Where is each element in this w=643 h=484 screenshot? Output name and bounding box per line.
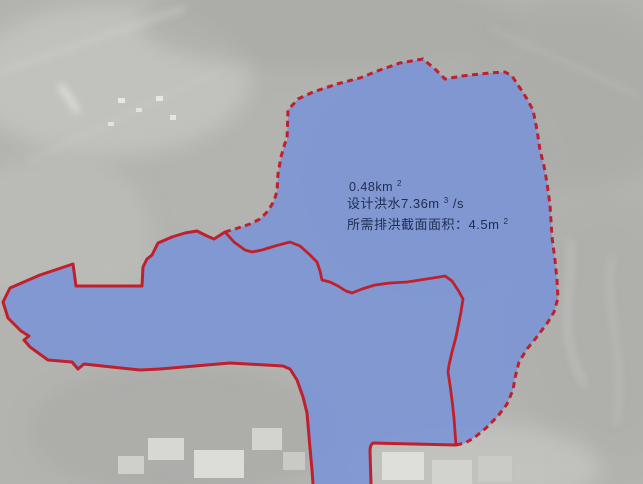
satellite-map-view: 0.48km 2 设计洪水7.36m 3 /s 所需排洪截面面积：4.5m 2	[0, 0, 643, 484]
design-flood-unit-suffix: /s	[453, 196, 464, 211]
design-flood-value: 设计洪水7.36m	[347, 196, 440, 211]
required-section-superscript: 2	[504, 217, 509, 226]
annotation-catchment-area: 0.48km 2	[349, 179, 402, 194]
annotation-required-section: 所需排洪截面面积：4.5m 2	[347, 217, 509, 232]
catchment-area-value: 0.48km	[349, 180, 393, 194]
catchment-area-superscript: 2	[397, 179, 402, 188]
required-section-value: 所需排洪截面面积：4.5m	[347, 217, 499, 232]
design-flood-superscript: 3	[444, 196, 449, 205]
catchment-map-canvas: 0.48km 2 设计洪水7.36m 3 /s 所需排洪截面面积：4.5m 2	[0, 0, 643, 484]
